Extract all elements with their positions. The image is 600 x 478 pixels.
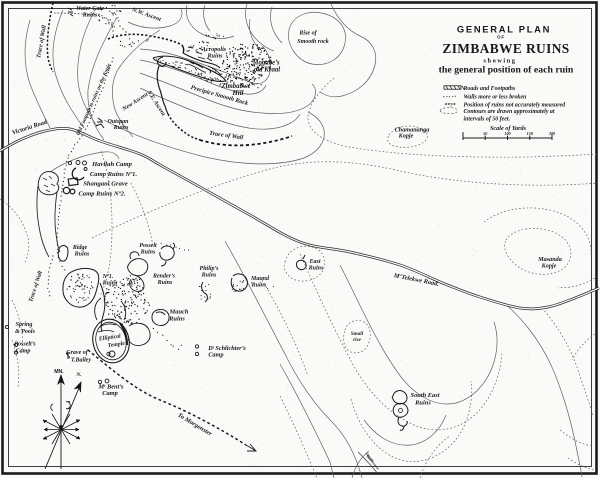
- svg-text:Camp Ruins Nº2.: Camp Ruins Nº2.: [78, 191, 126, 198]
- svg-text:Ruins: Ruins: [414, 400, 431, 407]
- svg-text:Position of ruins not accurate: Position of ruins not accurately measure…: [464, 103, 567, 109]
- svg-text:Posselt: Posselt: [139, 243, 157, 249]
- svg-text:Ruins: Ruins: [157, 280, 173, 286]
- svg-text:Spring: Spring: [16, 322, 33, 328]
- svg-text:150: 150: [527, 131, 534, 136]
- svg-text:Ruins: Ruins: [102, 281, 118, 287]
- svg-text:Posselt’s: Posselt’s: [14, 342, 36, 348]
- svg-text:Ruins: Ruins: [140, 250, 156, 256]
- svg-text:Camp: Camp: [208, 352, 223, 359]
- svg-text:East: East: [308, 259, 320, 265]
- svg-text:Mauch: Mauch: [169, 309, 189, 316]
- svg-text:Kopje: Kopje: [398, 133, 414, 140]
- svg-text:Philip’s: Philip’s: [200, 266, 220, 272]
- svg-text:Ruins: Ruins: [74, 252, 90, 258]
- svg-text:Camp: Camp: [16, 349, 31, 355]
- svg-text:Ruins: Ruins: [206, 53, 223, 60]
- svg-text:Grave of: Grave of: [66, 350, 88, 356]
- svg-text:intervals of 50 feet.: intervals of 50 feet.: [464, 116, 510, 122]
- svg-text:the general position of each: the general position of each ruin: [439, 64, 574, 75]
- svg-text:**?*: **?*: [444, 101, 455, 108]
- svg-text:Kopje: Kopje: [541, 263, 557, 270]
- svg-text:Ridge: Ridge: [72, 245, 88, 251]
- svg-text:ZIMBABWE RUINS: ZIMBABWE RUINS: [442, 41, 569, 56]
- svg-text:Maund: Maund: [250, 276, 270, 282]
- svg-text:& Pools: & Pools: [15, 329, 35, 335]
- svg-text:T.Bailey: T.Bailey: [71, 358, 92, 364]
- svg-text:Ruins: Ruins: [113, 125, 129, 131]
- svg-text:Shangani Grave: Shangani Grave: [83, 181, 128, 188]
- svg-text:Ruins: Ruins: [308, 266, 324, 272]
- svg-text:Camp Ruins Nº1.: Camp Ruins Nº1.: [90, 171, 138, 178]
- svg-text:rise: rise: [353, 337, 361, 343]
- svg-text:GENERAL PLAN: GENERAL PLAN: [457, 23, 551, 34]
- svg-text:Ruins: Ruins: [251, 283, 267, 289]
- svg-text:Walls more or less broken: Walls more or less broken: [464, 95, 527, 101]
- svg-text:Render’s: Render’s: [152, 274, 176, 280]
- svg-text:N.: N.: [75, 372, 81, 378]
- svg-text:200: 200: [548, 131, 556, 136]
- svg-text:100: 100: [504, 131, 511, 136]
- svg-text:Roads and Footpaths: Roads and Footpaths: [463, 86, 516, 92]
- svg-text:old Kraal: old Kraal: [254, 67, 280, 74]
- svg-text:Contours are drawn approximate: Contours are drawn approximately at: [464, 109, 555, 115]
- svg-text:Camp: Camp: [102, 390, 118, 397]
- svg-text:Ruins: Ruins: [201, 273, 217, 279]
- svg-text:Ruins: Ruins: [168, 316, 185, 323]
- svg-text:MN.: MN.: [54, 369, 64, 375]
- svg-text:Rise of: Rise of: [298, 31, 317, 37]
- svg-text:Havilah Camp: Havilah Camp: [91, 161, 132, 168]
- svg-text:Water Gate: Water Gate: [76, 6, 104, 12]
- svg-text:Mogabe’s: Mogabe’s: [251, 60, 279, 67]
- svg-text:Nº1.: Nº1.: [102, 274, 114, 280]
- svg-text:OF: OF: [497, 35, 505, 40]
- svg-text:Zimbabwe: Zimbabwe: [220, 83, 250, 90]
- svg-text:South East: South East: [411, 392, 440, 399]
- svg-text:Ruins: Ruins: [82, 13, 98, 19]
- svg-text:Smooth rock: Smooth rock: [297, 39, 329, 45]
